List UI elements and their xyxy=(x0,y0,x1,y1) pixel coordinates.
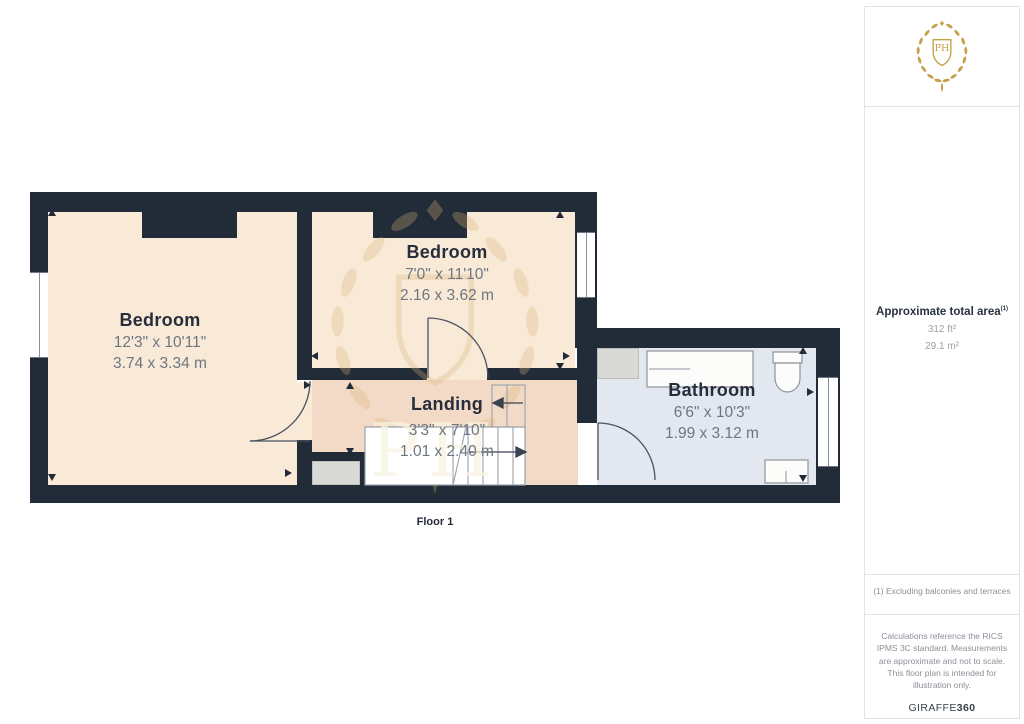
ph-crest-logo-icon: PH xyxy=(908,17,976,97)
footnote-marker: (1) xyxy=(1001,306,1008,312)
room-label-bathroom: Bathroom 6'6" x 10'3" 1.99 x 3.12 m xyxy=(612,380,812,443)
floor-plan-page: PH Bedroom 12'3" x 10'11" 3.74 x 3.34 m … xyxy=(0,0,1024,724)
room-dims-metric: 1.99 x 3.12 m xyxy=(612,425,812,443)
room-name: Bathroom xyxy=(612,380,812,401)
room-label-bedroom-2: Bedroom 7'0" x 11'10" 2.16 x 3.62 m xyxy=(347,242,547,305)
logo-monogram-text: PH xyxy=(935,43,950,54)
door-bedroom1 xyxy=(250,381,310,441)
room-name: Bedroom xyxy=(60,310,260,331)
room-dims-metric: 1.01 x 2.40 m xyxy=(347,443,547,461)
room-dims-imperial: 6'6" x 10'3" xyxy=(612,404,812,422)
footnote: (1) Excluding balconies and terraces xyxy=(865,568,1019,614)
room-name: Bedroom xyxy=(347,242,547,263)
total-area-title: Approximate total area(1) xyxy=(865,306,1019,318)
total-area-imperial: 312 ft² xyxy=(865,324,1019,335)
room-label-landing: Landing 3'3" x 7'10" 1.01 x 2.40 m xyxy=(347,394,547,461)
agency-logo: PH xyxy=(865,17,1019,102)
total-area-metric: 29.1 m² xyxy=(865,341,1019,352)
room-label-bedroom-1: Bedroom 12'3" x 10'11" 3.74 x 3.34 m xyxy=(60,310,260,373)
floor-label: Floor 1 xyxy=(335,516,535,528)
disclaimer-block: Calculations reference the RICS IPMS 3C … xyxy=(865,614,1019,714)
sidebar: PH Approximate total area(1) 312 ft² 29.… xyxy=(864,6,1020,719)
sidebar-divider xyxy=(865,106,1019,107)
door-bedroom2 xyxy=(428,318,488,378)
room-dims-imperial: 12'3" x 10'11" xyxy=(60,334,260,352)
room-dims-imperial: 7'0" x 11'10" xyxy=(347,266,547,284)
room-dims-imperial: 3'3" x 7'10" xyxy=(347,422,547,440)
room-dims-metric: 2.16 x 3.62 m xyxy=(347,287,547,305)
room-dims-metric: 3.74 x 3.34 m xyxy=(60,355,260,373)
total-area-block: Approximate total area(1) 312 ft² 29.1 m… xyxy=(865,306,1019,352)
sink xyxy=(765,460,808,483)
room-name: Landing xyxy=(347,394,547,415)
disclaimer-text: Calculations reference the RICS IPMS 3C … xyxy=(873,630,1011,692)
brand-logo: GIRAFFE360 xyxy=(865,702,1019,714)
